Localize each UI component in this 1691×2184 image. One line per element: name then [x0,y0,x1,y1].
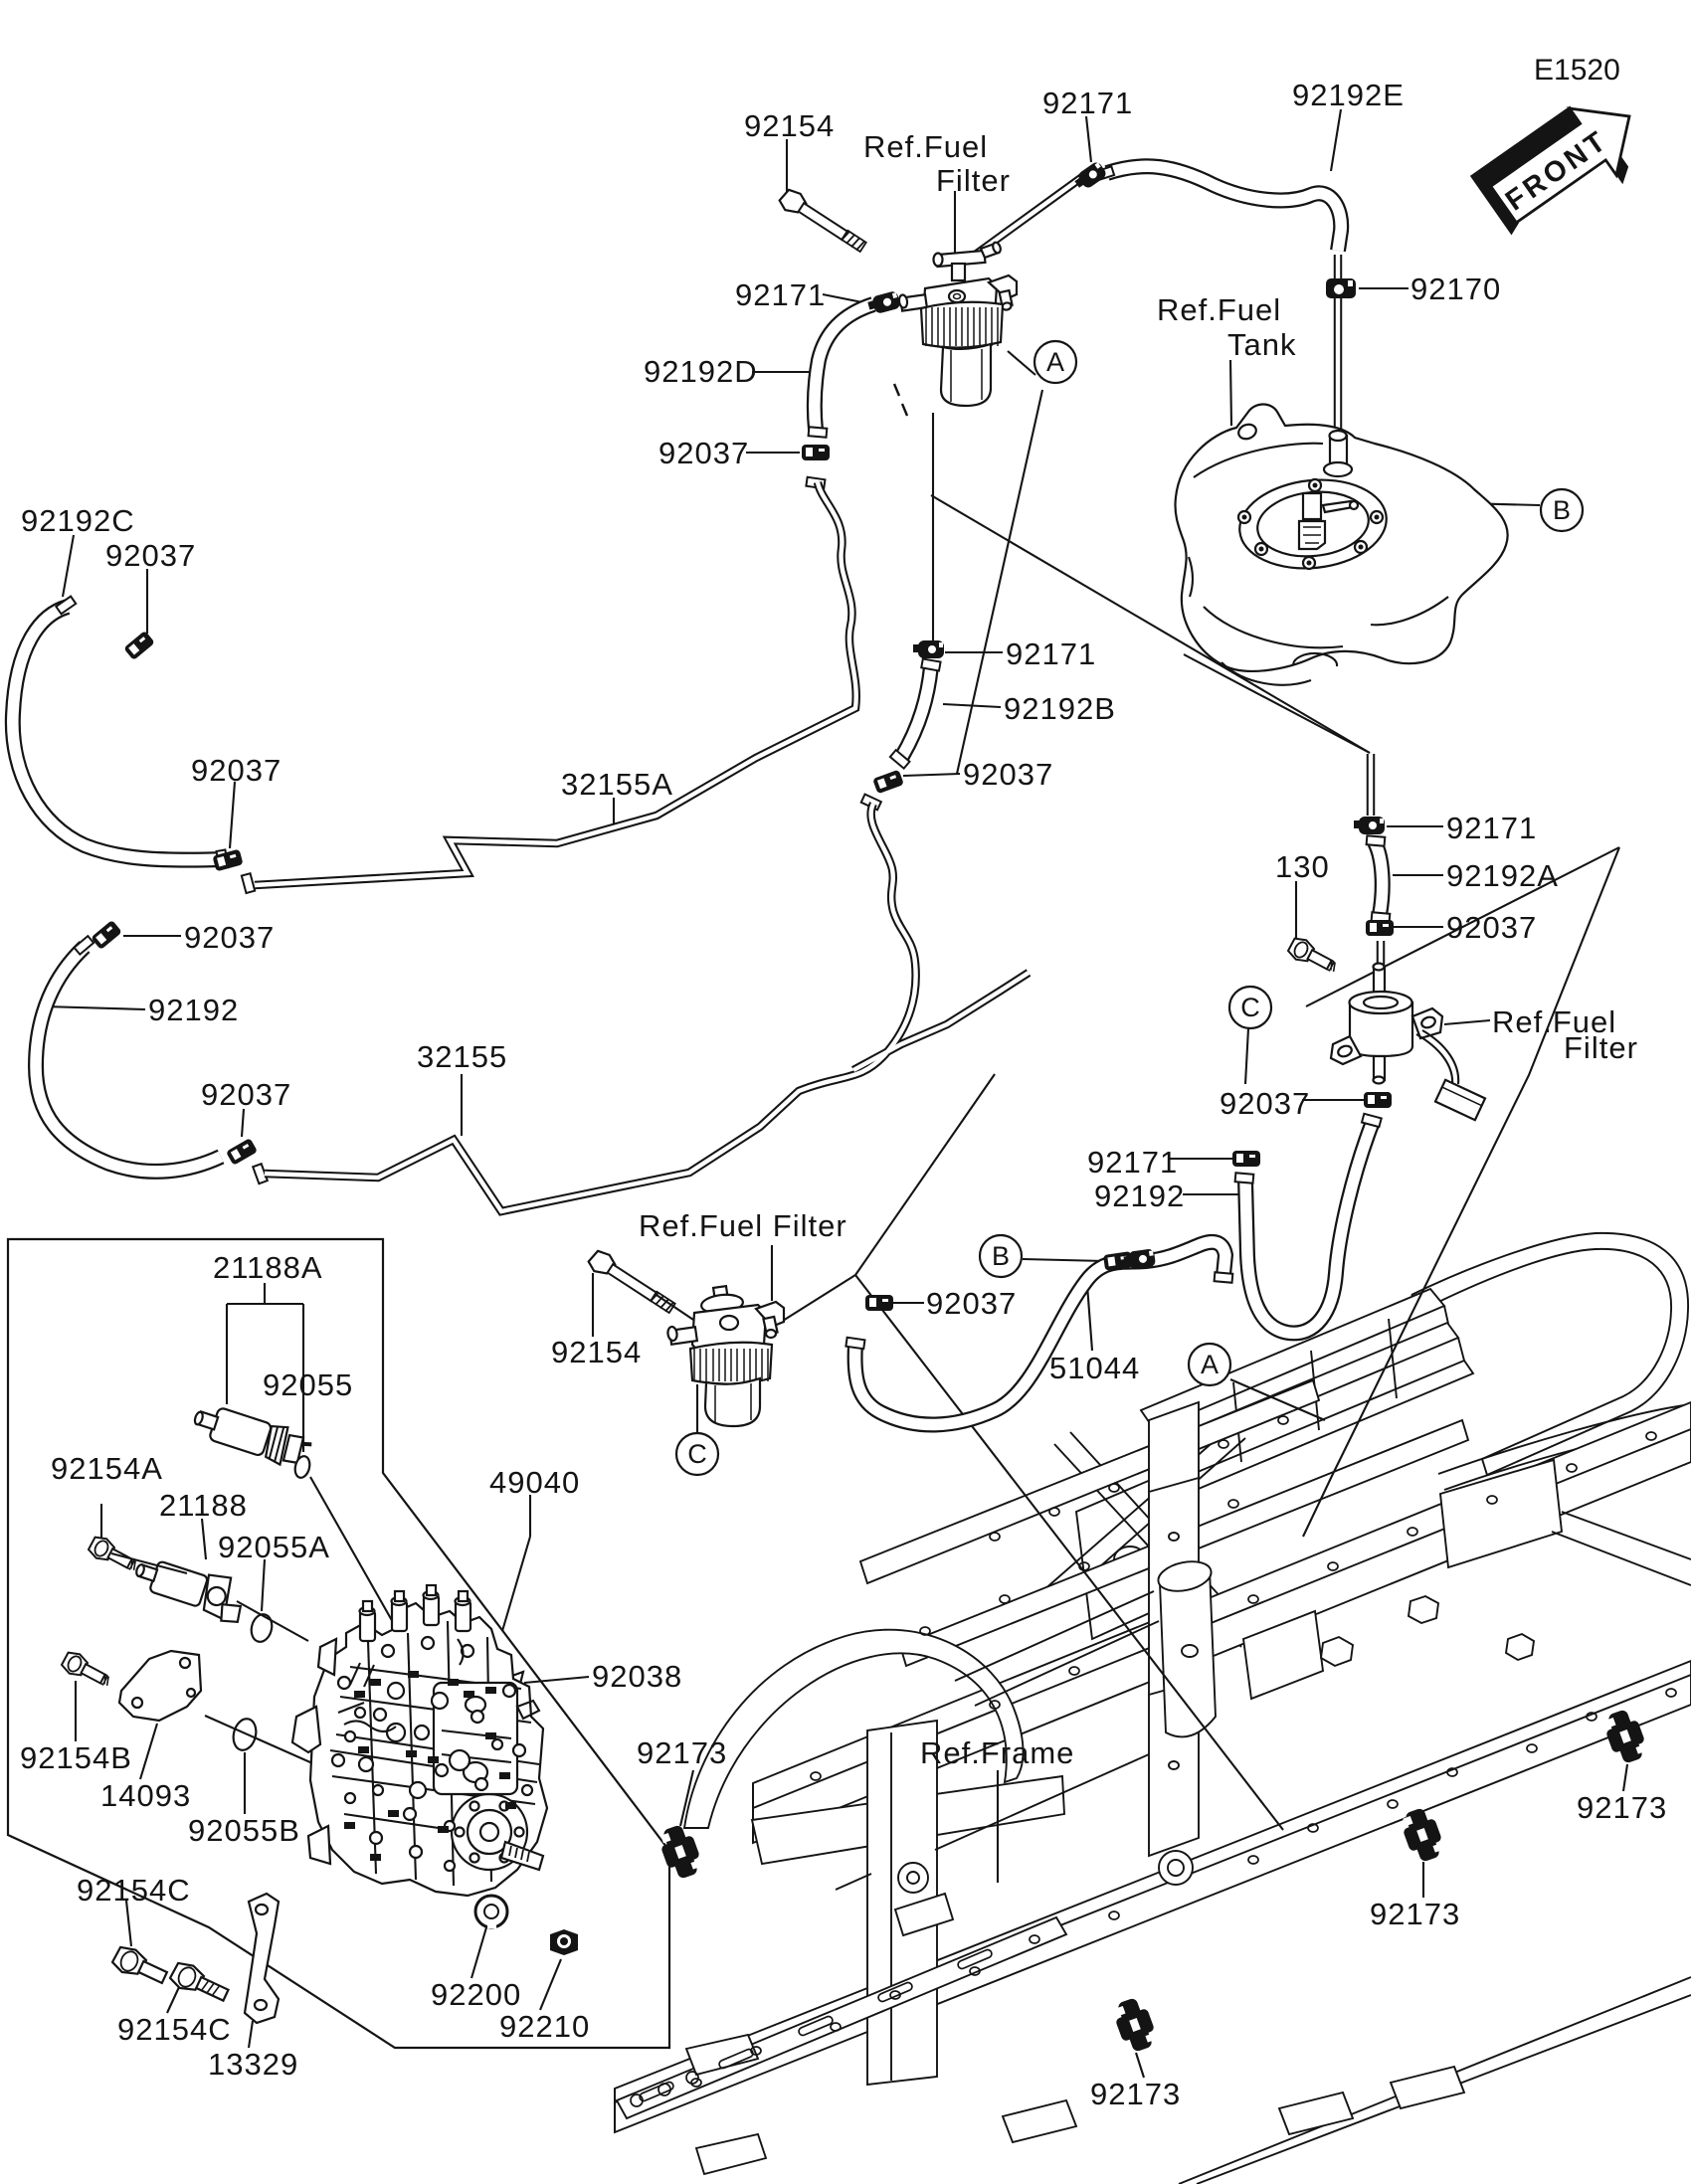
svg-text:92171: 92171 [735,277,826,312]
svg-text:92192: 92192 [1094,1179,1185,1213]
svg-text:92055: 92055 [263,1367,353,1402]
svg-text:92154C: 92154C [117,2012,232,2047]
svg-text:14093: 14093 [100,1778,191,1813]
svg-text:C: C [1240,993,1260,1022]
svg-text:92037: 92037 [658,436,749,470]
svg-text:92192A: 92192A [1446,858,1559,893]
svg-text:Filter: Filter [1564,1030,1638,1065]
svg-text:C: C [687,1439,707,1469]
svg-text:Filter: Filter [936,163,1011,198]
svg-text:32155A: 32155A [561,767,673,802]
svg-text:92037: 92037 [191,753,282,788]
svg-text:Ref.Fuel: Ref.Fuel [863,129,988,164]
svg-text:B: B [992,1241,1010,1271]
svg-text:Tank: Tank [1227,327,1296,362]
svg-text:92171: 92171 [1446,811,1537,845]
svg-text:92037: 92037 [201,1077,291,1112]
svg-text:A: A [1201,1350,1219,1379]
svg-text:Ref.Frame: Ref.Frame [920,1735,1074,1770]
svg-text:92037: 92037 [184,920,275,955]
svg-text:Ref.Fuel Filter: Ref.Fuel Filter [639,1208,847,1243]
svg-text:92154A: 92154A [51,1451,163,1486]
svg-text:B: B [1553,495,1571,525]
svg-text:92038: 92038 [592,1659,682,1694]
svg-text:51044: 51044 [1049,1351,1140,1385]
svg-text:92037: 92037 [1220,1086,1310,1121]
svg-text:13329: 13329 [208,2047,298,2082]
svg-text:92154: 92154 [551,1335,642,1369]
svg-text:92037: 92037 [105,538,196,573]
svg-text:E1520: E1520 [1534,54,1620,87]
svg-text:92192: 92192 [148,993,239,1027]
svg-text:92192C: 92192C [21,503,135,538]
svg-text:92173: 92173 [1090,2077,1181,2111]
svg-text:49040: 49040 [489,1465,580,1500]
svg-text:92037: 92037 [1446,910,1537,945]
svg-text:32155: 32155 [417,1039,507,1074]
svg-text:92037: 92037 [926,1286,1017,1321]
svg-text:A: A [1046,347,1064,377]
svg-text:92171: 92171 [1042,86,1133,120]
svg-text:92170: 92170 [1410,272,1501,306]
svg-text:21188A: 21188A [213,1250,323,1285]
svg-text:130: 130 [1275,849,1330,884]
svg-text:Ref.Fuel: Ref.Fuel [1157,292,1281,327]
svg-text:92037: 92037 [963,757,1053,792]
svg-text:92173: 92173 [1370,1897,1460,1931]
svg-text:92171: 92171 [1006,637,1096,671]
svg-text:92154C: 92154C [77,1873,191,1908]
svg-text:92200: 92200 [431,1977,521,2012]
svg-text:92154B: 92154B [20,1740,132,1775]
svg-text:92154: 92154 [744,108,835,143]
svg-text:92173: 92173 [637,1735,727,1770]
svg-text:21188: 21188 [159,1488,248,1523]
svg-text:92192E: 92192E [1292,78,1405,112]
svg-text:92055B: 92055B [188,1813,300,1848]
svg-text:92210: 92210 [499,2009,590,2044]
svg-text:92192D: 92192D [644,354,758,389]
svg-text:92171: 92171 [1087,1145,1178,1180]
svg-text:92055A: 92055A [218,1530,330,1564]
svg-text:92173: 92173 [1577,1790,1667,1825]
svg-text:92192B: 92192B [1004,691,1116,726]
